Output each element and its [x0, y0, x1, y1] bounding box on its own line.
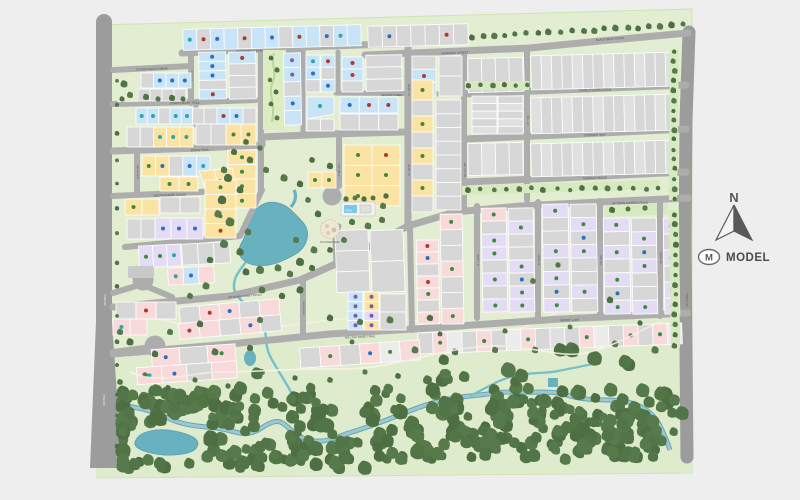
svg-text:PLAYGROUND: PLAYGROUND — [320, 240, 339, 244]
svg-text:BETTY LN: BETTY LN — [476, 254, 479, 266]
svg-text:MARC RD: MARC RD — [659, 252, 662, 263]
svg-text:BETSY LN: BETSY LN — [407, 164, 410, 176]
svg-text:MILL LN: MILL LN — [526, 116, 529, 125]
svg-text:CENTER STREET: CENTER STREET — [381, 93, 403, 97]
svg-text:SANDCHERRY TRAIL: SANDCHERRY TRAIL — [170, 101, 201, 106]
svg-text:N: N — [729, 190, 738, 205]
svg-text:FANTASY RIDGE: FANTASY RIDGE — [583, 176, 607, 181]
svg-text:BERRY LANE: BERRY LANE — [560, 318, 579, 323]
svg-text:POOL: POOL — [345, 208, 353, 212]
svg-text:BETSY LN: BETSY LN — [407, 84, 410, 96]
svg-text:BISON TRAIL: BISON TRAIL — [191, 148, 210, 153]
svg-text:M: M — [705, 253, 713, 264]
svg-text:YELLOW BUD: YELLOW BUD — [302, 301, 304, 316]
svg-text:UPTOWN WATERS ROAD: UPTOWN WATERS ROAD — [612, 201, 649, 206]
svg-text:MODEL: MODEL — [726, 252, 770, 264]
svg-text:VAN DE KUM: VAN DE KUM — [136, 165, 139, 179]
svg-text:STEWART WAY: STEWART WAY — [584, 133, 606, 138]
svg-text:PINE RD: PINE RD — [103, 294, 107, 305]
svg-text:LAZY PALM: LAZY PALM — [337, 164, 340, 177]
svg-text:BAY HILL RD: BAY HILL RD — [463, 163, 466, 178]
svg-text:LONG LN: LONG LN — [537, 255, 540, 266]
svg-text:TINY RD: TINY RD — [599, 255, 602, 265]
svg-text:PINE RD: PINE RD — [102, 394, 106, 405]
svg-text:CREEK RD: CREEK RD — [685, 293, 689, 307]
